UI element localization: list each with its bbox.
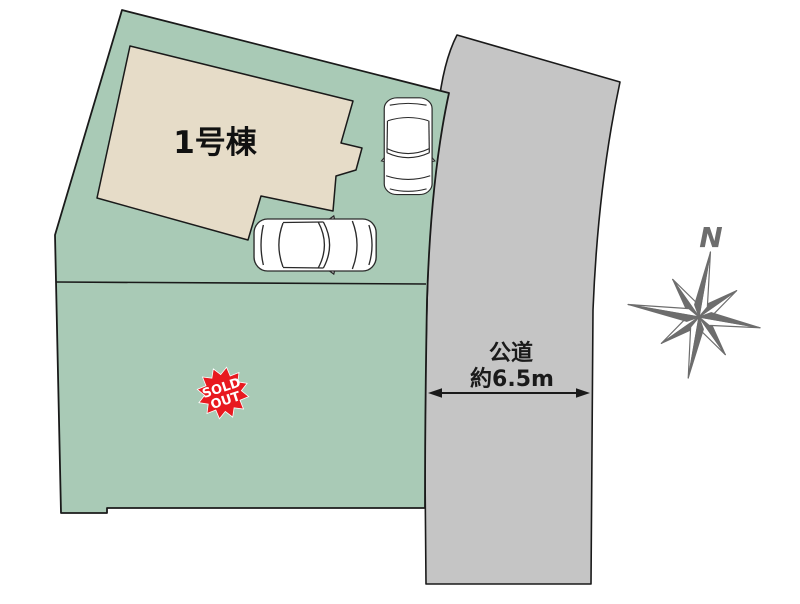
- building-label: 1号棟: [173, 125, 258, 161]
- site-plan-canvas: 1号棟 SOLD OUT 公道: [0, 0, 800, 600]
- compass-north-label: N: [699, 221, 722, 254]
- car-icon: [254, 216, 376, 274]
- road-width-label: 約6.5m: [470, 366, 554, 392]
- car-icon: [381, 98, 434, 195]
- road-name-label: 公道: [489, 340, 533, 366]
- road-area: [425, 35, 620, 584]
- compass-rose-icon: [617, 240, 771, 389]
